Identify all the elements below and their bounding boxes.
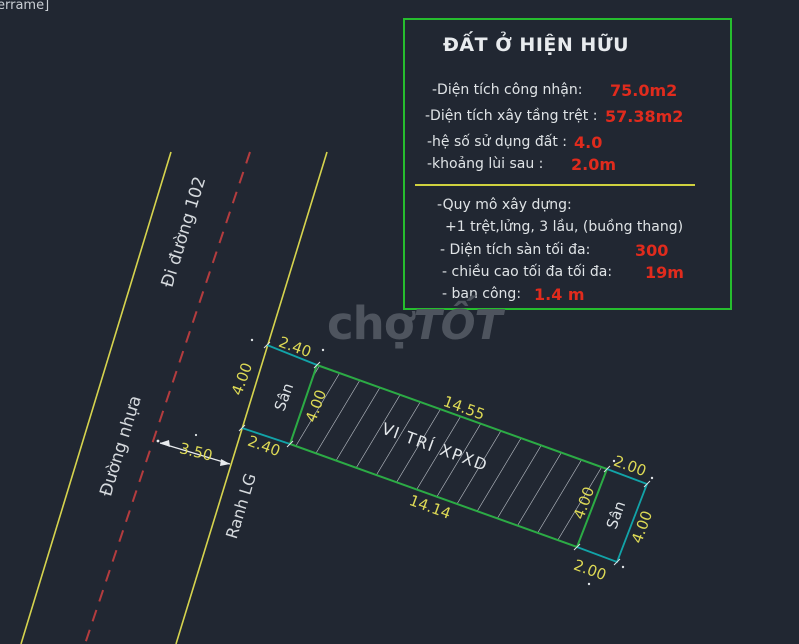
info-row-value: 1.4 m (534, 285, 585, 304)
back-yard-label: Sân (603, 499, 630, 532)
info-row-value: 2.0m (571, 155, 616, 174)
info-row-value: 4.0 (574, 133, 602, 152)
front-yard-label: Sân (271, 381, 298, 414)
info-row-value: 19m (645, 263, 684, 282)
road-name-label: Đi đường 102 (158, 174, 211, 290)
info-row-label: +1 trệt,lửng, 3 lầu, (buồng thang) (445, 219, 683, 235)
info-row: - chiều cao tối đa tối đa: 19m (442, 264, 612, 280)
planning-info-box: ĐẤT Ở HIỆN HỮU -Diện tích công nhận: 75.… (403, 18, 732, 310)
road-edge-line-left (21, 152, 171, 644)
cad-canvas: errame] (0, 0, 799, 644)
info-row: -Diện tích xây tầng trệt : 57.38m2 (425, 108, 597, 124)
dim-front-width-bottom: 2.40 (245, 432, 283, 460)
info-row-label: - chiều cao tối đa tối đa: (442, 264, 612, 280)
info-row: - Diện tích sàn tối đa: 300 (440, 242, 590, 258)
chotot-watermark-logo: chợTỐT (327, 297, 501, 350)
dim-back-width-top: 2.00 (611, 452, 649, 480)
info-box-divider (415, 184, 695, 186)
road-edge-line-right-ranh-lg (176, 152, 327, 644)
dim-back-depth: 4.00 (628, 508, 656, 546)
info-row-label: -hệ số sử dụng đất : (427, 134, 567, 150)
info-row-label: -Diện tích xây tầng trệt : (425, 108, 597, 124)
road-surface-label: Đường nhựa (96, 393, 146, 498)
info-row-label: -Diện tích công nhận: (432, 82, 582, 98)
info-row-label: -Quy mô xây dựng: (437, 197, 572, 213)
boundary-label: Ranh LG (222, 471, 260, 541)
info-row: +1 trệt,lửng, 3 lầu, (buồng thang) (445, 219, 683, 235)
info-row: -Quy mô xây dựng: (437, 197, 572, 213)
dim-road-offset: 3.50 (178, 439, 215, 465)
info-row: -Diện tích công nhận: 75.0m2 (432, 82, 582, 98)
info-row-value: 300 (635, 241, 668, 260)
info-row-label: - Diện tích sàn tối đa: (440, 242, 590, 258)
info-box-title: ĐẤT Ở HIỆN HỮU (443, 34, 629, 56)
road-centerline (85, 152, 250, 644)
dim-back-width-bottom: 2.00 (571, 556, 609, 584)
info-row: -khoảng lùi sau : 2.0m (427, 156, 543, 172)
watermark-text-cho: chợ (327, 297, 414, 350)
watermark-text-tot: TỐT (414, 301, 502, 349)
info-row-value: 57.38m2 (605, 107, 683, 126)
dim-front-depth: 4.00 (228, 360, 256, 398)
info-row-value: 75.0m2 (610, 81, 677, 100)
info-row-label: -khoảng lùi sau : (427, 156, 543, 172)
info-row: -hệ số sử dụng đất : 4.0 (427, 134, 567, 150)
